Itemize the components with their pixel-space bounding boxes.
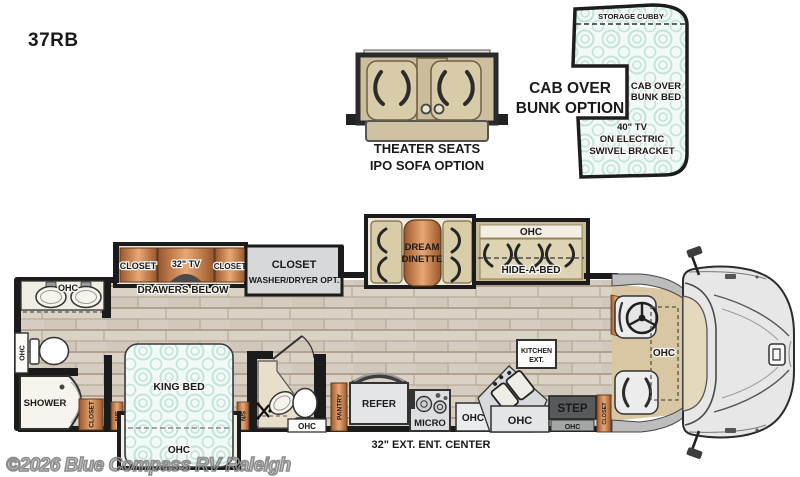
truck-front	[683, 246, 794, 460]
bunk-bed-label-line1: CAB OVER	[631, 81, 681, 92]
slide-hide-a-bed: OHC HIDE-A-BED	[474, 220, 588, 283]
burner-icon	[434, 401, 446, 413]
cab-over-bunk-option: STORAGE CUBBY CAB OVER BUNK BED 40" TV O…	[516, 5, 687, 177]
washer-dryer-closet: CLOSET WASHER/DRYER OPT.	[246, 246, 342, 295]
drawers-below-label: DRAWERS BELOW	[137, 285, 229, 296]
theater-label-line2: IPO SOFA OPTION	[370, 158, 484, 173]
cupholder-icon	[435, 105, 444, 114]
theater-label-line1: THEATER SEATS	[374, 141, 481, 156]
shower-drain-icon	[60, 385, 65, 390]
king-bed-label: KING BED	[153, 381, 205, 393]
kitchen-ohc1-label: OHC	[462, 413, 484, 424]
bedroom: N/S N/S KING BED OHC	[111, 344, 249, 468]
bunk-tv-label-line2: ON ELECTRIC	[600, 134, 665, 145]
windshield-dash	[683, 296, 707, 411]
toilet-icon	[293, 389, 317, 418]
cab-ohc-label: OHC	[653, 348, 675, 359]
wd-option-label: WASHER/DRYER OPT.	[249, 275, 339, 285]
kitchen-ext-label-line2: EXT.	[529, 357, 544, 364]
floorplan-drawing: 37RB THEATER SEATS IPO SOFA OPTION STORA…	[0, 0, 800, 477]
ext-ent-center-label: 32" EXT. ENT. CENTER	[372, 439, 491, 451]
mirror-icon	[686, 246, 703, 259]
vanity-ohc-label: OHC	[58, 283, 79, 293]
storage-cubby-label: STORAGE CUBBY	[598, 12, 664, 21]
theater-seats-option: THEATER SEATS IPO SOFA OPTION	[346, 50, 508, 173]
hab-label: HIDE-A-BED	[502, 265, 561, 276]
toilet-tank	[30, 339, 39, 364]
halfbath-ohc-label: OHC	[298, 422, 316, 431]
dinette-label-line1: DREAM	[405, 242, 440, 253]
bunk-bed-label-line2: BUNK BED	[631, 92, 681, 103]
cupholder-icon	[422, 105, 431, 114]
bunk-tv-label-line1: 40" TV	[617, 122, 648, 133]
bath-closet-label: CLOSET	[89, 401, 96, 427]
pantry-label: PANTRY	[337, 393, 344, 420]
closet-label: CLOSET	[120, 261, 157, 271]
toilet-icon	[40, 338, 69, 365]
refer-label: REFER	[362, 399, 397, 410]
range-handle	[411, 391, 415, 409]
dinette-label-line2: DINETTE	[402, 254, 443, 265]
bunk-option-title-line2: BUNK OPTION	[516, 100, 625, 117]
bunk-tv-label-line3: SWIVEL BRACKET	[589, 146, 675, 157]
burner-icon	[417, 397, 432, 412]
kitchen-ohc2-label: OHC	[508, 415, 533, 427]
micro-label: MICRO	[414, 418, 446, 429]
model-number: 37RB	[28, 30, 79, 51]
dinette-table	[404, 220, 441, 286]
nightstand-right-label: N/S	[242, 411, 248, 421]
kitchen-ext-label-line1: KITCHEN	[521, 348, 552, 355]
closet-label: CLOSET	[214, 262, 247, 271]
mirror-icon	[686, 447, 703, 460]
floorplan-page: 37RB THEATER SEATS IPO SOFA OPTION STORA…	[0, 0, 800, 477]
toilet-ohc-label: OHC	[20, 345, 27, 361]
bunk-option-title-line1: CAB OVER	[529, 80, 611, 97]
shower-label: SHOWER	[24, 398, 67, 409]
entry-closet-label: CLOSET	[602, 402, 608, 425]
tv-label: 32" TV	[172, 259, 200, 269]
step-label: STEP	[557, 403, 587, 415]
slide-dream-dinette: DREAM DINETTE	[366, 216, 474, 287]
hab-ohc-label: OHC	[520, 227, 542, 238]
wd-closet-label: CLOSET	[272, 259, 317, 271]
step-ohc-label: OHC	[565, 424, 581, 431]
watermark: ©2026 Blue Compass RV Raleigh	[6, 455, 291, 476]
theater-base	[366, 121, 488, 141]
grille-badge-icon	[769, 344, 785, 365]
